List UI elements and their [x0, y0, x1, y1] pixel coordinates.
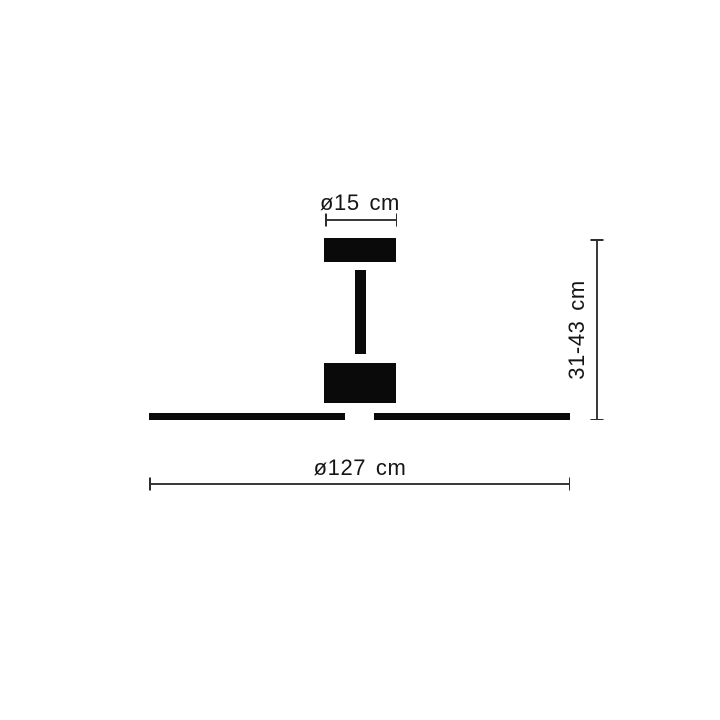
dimension-tick: [396, 213, 398, 226]
dimension-tick: [590, 239, 603, 241]
dimension-diagram: ø15 cm 31-43 cm ø127 cm: [0, 0, 720, 720]
dimension-tick: [590, 419, 603, 421]
motor-housing-shape: [324, 363, 396, 403]
overall-diameter-dimension-line: [149, 483, 570, 485]
downrod-shape: [355, 270, 366, 354]
height-dimension-line: [596, 239, 598, 420]
dimension-tick: [149, 477, 151, 490]
top-dimension-line: [325, 219, 397, 221]
canopy-shape: [324, 238, 396, 262]
dimension-tick: [325, 213, 327, 226]
blade-right-shape: [374, 413, 570, 420]
dimension-tick: [569, 477, 571, 490]
blade-left-shape: [149, 413, 345, 420]
height-range-label: 31-43 cm: [566, 280, 588, 380]
top-diameter-label: ø15 cm: [320, 192, 400, 214]
overall-diameter-label: ø127 cm: [314, 457, 407, 479]
